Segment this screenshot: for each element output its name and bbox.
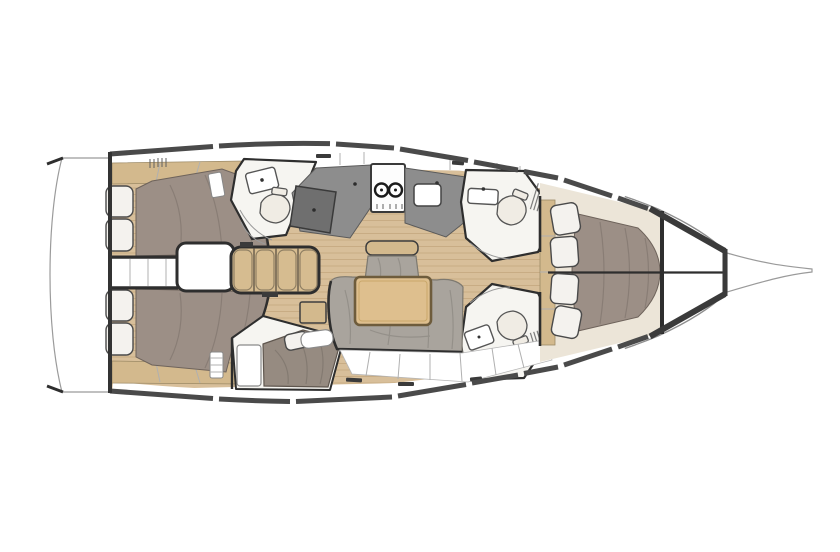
counter-dot <box>353 182 357 186</box>
band-top-2 <box>219 143 330 146</box>
stern-passage <box>112 258 178 287</box>
burner-center-dot <box>394 189 397 192</box>
salon-table <box>355 277 431 325</box>
locker-door <box>237 345 261 386</box>
band-bottom-2 <box>219 399 290 402</box>
pillow <box>550 236 579 268</box>
deck-window-dash <box>316 154 331 158</box>
bowsprit-shape <box>727 253 812 292</box>
deck-window-dash <box>398 382 414 386</box>
step-latch-bottom <box>262 292 278 297</box>
side-table <box>300 302 326 323</box>
galley-sink <box>414 184 441 206</box>
faucet-icon <box>435 181 439 185</box>
swim-platform-shape <box>50 158 110 392</box>
companionway-steps <box>231 247 319 293</box>
burner-center-dot <box>380 189 383 192</box>
bowsprit <box>727 253 812 292</box>
floor-plan-svg <box>0 0 840 552</box>
floor-plan-canvas <box>0 0 840 552</box>
deck-window-dash <box>346 378 362 383</box>
seat-headrest <box>366 241 418 255</box>
step-latch-top <box>240 242 253 247</box>
toilet <box>497 196 526 225</box>
pillow <box>550 305 582 340</box>
pillow <box>550 273 579 305</box>
toilet <box>497 311 527 340</box>
toilet <box>260 194 290 223</box>
swim-platform <box>47 158 110 392</box>
pillow <box>550 202 582 236</box>
forward-cabin <box>540 183 724 362</box>
table-latch-dot <box>312 208 316 212</box>
toilet-tank <box>272 187 288 196</box>
engine-box <box>177 243 234 291</box>
